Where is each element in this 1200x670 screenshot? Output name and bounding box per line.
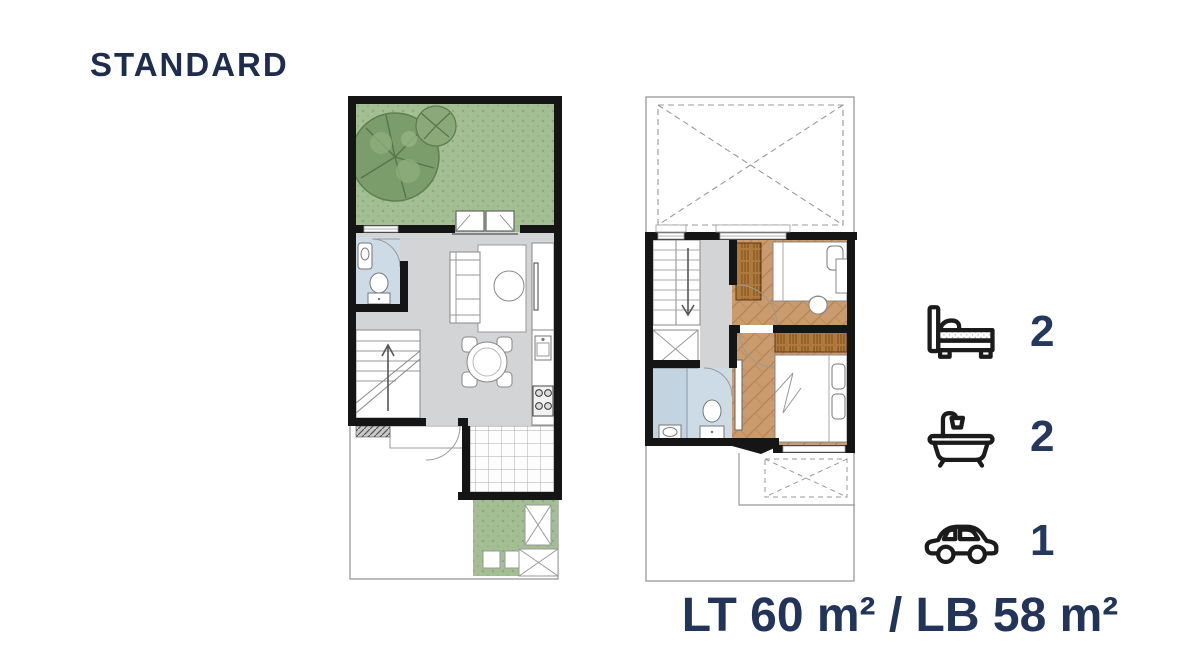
toilet-icon bbox=[368, 273, 390, 304]
planter-box bbox=[519, 549, 558, 576]
bathroom-upper bbox=[653, 368, 732, 443]
window bbox=[656, 225, 790, 239]
window bbox=[364, 226, 398, 232]
pillow bbox=[832, 394, 845, 419]
upper-floor-plan bbox=[643, 93, 857, 585]
ground-floor-plan bbox=[346, 93, 564, 585]
stepping-stone bbox=[483, 551, 500, 568]
pillow bbox=[832, 364, 845, 389]
bathrooms-row: 2 bbox=[922, 404, 1054, 470]
canvas: STANDARD bbox=[0, 0, 1200, 670]
shoe-rack bbox=[356, 426, 390, 437]
wardrobe bbox=[736, 243, 761, 300]
bathroom bbox=[356, 237, 400, 308]
bathroom-count: 2 bbox=[1030, 415, 1054, 459]
carport-count: 1 bbox=[1030, 519, 1054, 563]
staircase bbox=[653, 240, 700, 325]
carport-row: 1 bbox=[922, 512, 1054, 570]
area-label: LT 60 m² / LB 58 m² bbox=[600, 588, 1200, 643]
car-icon bbox=[922, 512, 1002, 570]
bush-icon bbox=[416, 106, 456, 146]
backyard-garden bbox=[473, 500, 558, 576]
bed-icon bbox=[922, 300, 1002, 364]
desk-chair bbox=[809, 296, 827, 314]
bathtub-icon bbox=[922, 404, 1002, 470]
double-bed bbox=[775, 355, 847, 442]
desk bbox=[836, 259, 848, 293]
tv-console bbox=[532, 243, 554, 330]
bedrooms-row: 2 bbox=[922, 300, 1054, 364]
coffee-table bbox=[494, 271, 524, 301]
corridor bbox=[700, 240, 732, 368]
staircase bbox=[356, 330, 420, 418]
balcony-window bbox=[783, 446, 845, 452]
bedroom-count: 2 bbox=[1030, 310, 1054, 354]
garden bbox=[351, 104, 554, 232]
porch bbox=[470, 426, 554, 492]
page-title: STANDARD bbox=[90, 46, 289, 84]
sink-icon bbox=[659, 425, 681, 440]
dining-table bbox=[462, 337, 512, 387]
stove-icon bbox=[533, 386, 553, 416]
tv-panel bbox=[735, 360, 742, 430]
sink-icon bbox=[358, 243, 372, 269]
planter-box bbox=[525, 505, 551, 545]
kitchen-sink-icon bbox=[535, 336, 551, 360]
sofa bbox=[450, 252, 480, 323]
kitchen-counter bbox=[532, 330, 554, 425]
